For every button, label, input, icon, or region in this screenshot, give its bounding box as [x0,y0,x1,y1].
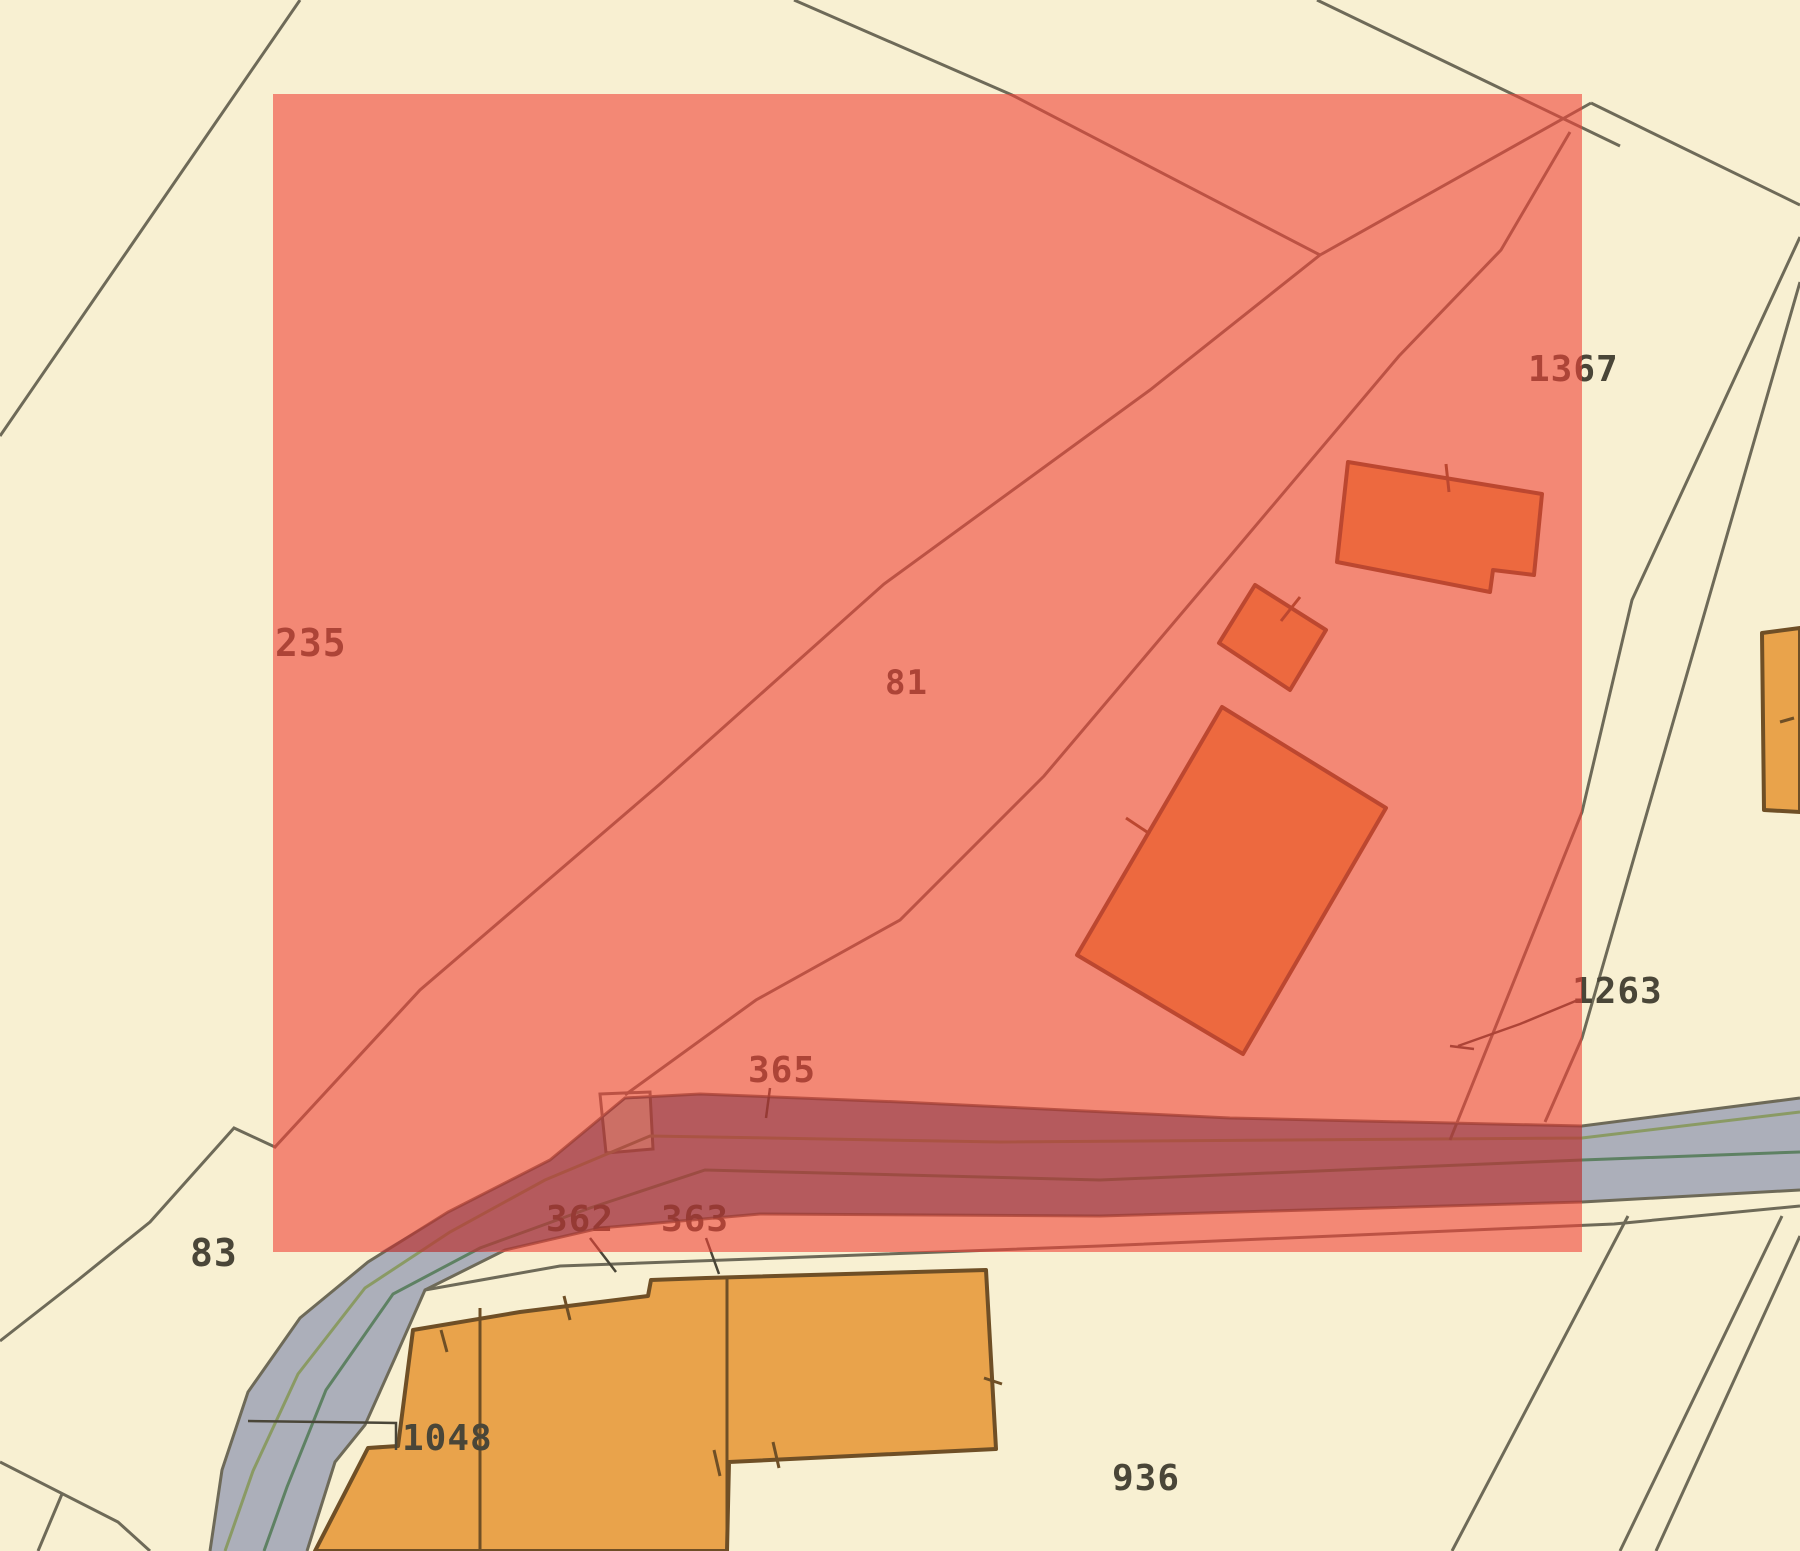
parcel-label-1048[interactable]: 1048 [402,1418,493,1459]
parcel-label-1263[interactable]: 1263 [1572,971,1663,1012]
selection-overlay [273,94,1582,1252]
map-viewport[interactable]: 235 81 1367 1263 365 362 363 83 1048 936 [0,0,1800,1551]
parcel-label-83[interactable]: 83 [190,1231,238,1275]
map-canvas[interactable]: 235 81 1367 1263 365 362 363 83 1048 936 [0,0,1800,1551]
building-east-sliver[interactable] [1762,628,1800,812]
parcel-label-936[interactable]: 936 [1112,1458,1180,1499]
